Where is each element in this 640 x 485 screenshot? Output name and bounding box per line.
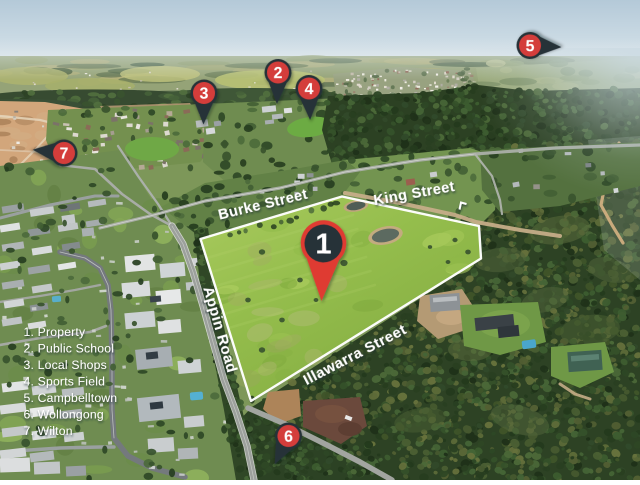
svg-text:3. Local Shops: 3. Local Shops <box>24 358 107 372</box>
svg-text:7: 7 <box>60 146 69 163</box>
svg-text:1: 1 <box>315 229 331 261</box>
svg-text:3: 3 <box>200 86 209 103</box>
svg-text:5. Campbelltown: 5. Campbelltown <box>24 391 118 405</box>
svg-text:2: 2 <box>274 65 283 82</box>
svg-text:7. Wilton: 7. Wilton <box>24 424 73 438</box>
svg-text:1. Property: 1. Property <box>24 325 87 339</box>
svg-text:5: 5 <box>526 38 535 55</box>
svg-text:2. Public School: 2. Public School <box>24 342 115 356</box>
svg-text:6: 6 <box>284 429 293 446</box>
svg-text:4. Sports Field: 4. Sports Field <box>24 375 106 389</box>
svg-text:4: 4 <box>305 81 314 98</box>
svg-text:6. Wollongong: 6. Wollongong <box>24 407 104 421</box>
